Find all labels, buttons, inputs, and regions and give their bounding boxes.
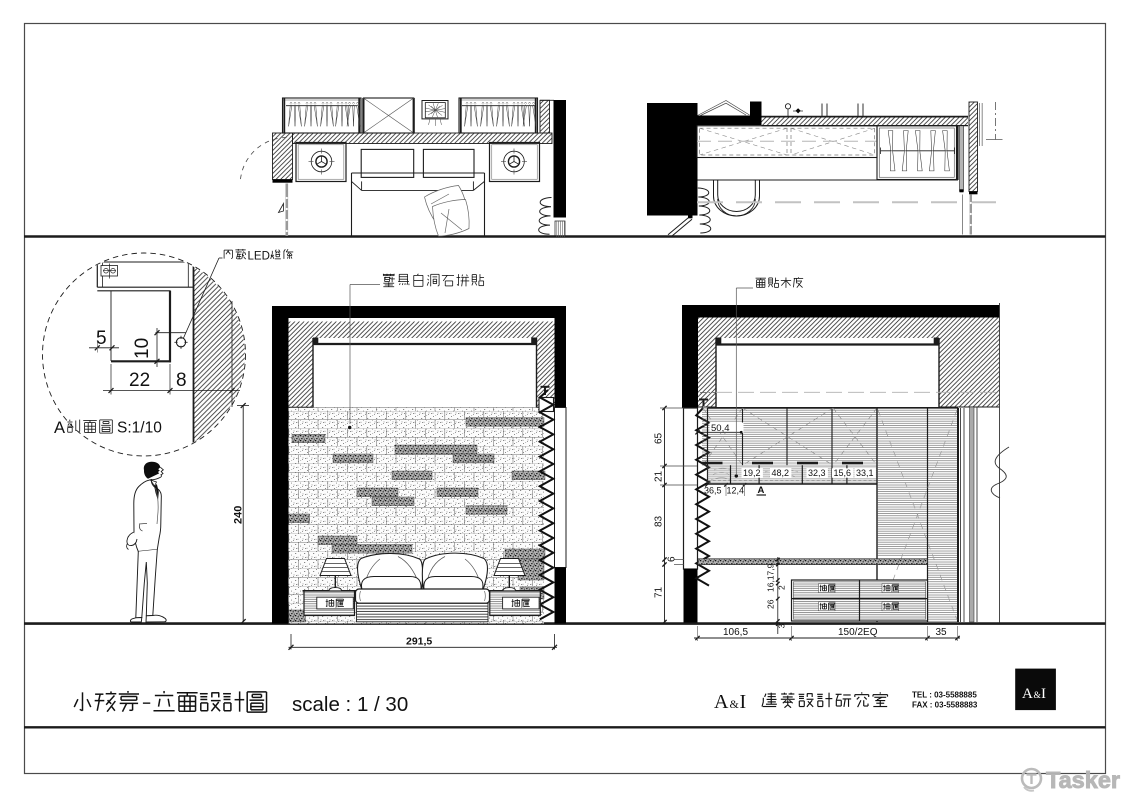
svg-text:S:1/10: S:1/10 (117, 420, 162, 437)
svg-text:16,17,9: 16,17,9 (766, 563, 776, 592)
svg-text:106,5: 106,5 (723, 627, 748, 638)
svg-text:I: I (740, 691, 747, 713)
svg-text:12,4: 12,4 (727, 486, 745, 496)
svg-text:48,2: 48,2 (772, 468, 790, 478)
svg-text:15,6: 15,6 (834, 468, 852, 478)
svg-text:83: 83 (654, 515, 665, 527)
svg-text:A: A (54, 419, 65, 437)
svg-text:6: 6 (667, 556, 678, 562)
svg-text:3: 3 (777, 624, 787, 629)
svg-text:10: 10 (132, 338, 153, 359)
svg-text:LED: LED (248, 251, 270, 263)
svg-text:21: 21 (654, 470, 665, 482)
svg-text:33,1: 33,1 (856, 468, 874, 478)
svg-text:FAX : 03-5588883: FAX : 03-5588883 (912, 701, 978, 710)
svg-text:71: 71 (654, 586, 665, 598)
svg-text:A: A (758, 485, 765, 496)
svg-text:32,3: 32,3 (808, 468, 826, 478)
svg-text:&: & (730, 697, 740, 711)
svg-text:36,5: 36,5 (704, 486, 722, 496)
svg-text:I: I (1041, 686, 1046, 702)
svg-text:22: 22 (129, 370, 150, 391)
svg-text:240: 240 (233, 506, 245, 524)
svg-text:150/2EQ: 150/2EQ (838, 627, 878, 638)
svg-text:A: A (714, 691, 729, 713)
svg-text:Tasker: Tasker (1046, 767, 1120, 793)
svg-text:TEL : 03-5588885: TEL : 03-5588885 (912, 691, 977, 700)
svg-text:19,2: 19,2 (743, 468, 761, 478)
svg-text:26: 26 (766, 599, 776, 609)
svg-text:65: 65 (654, 432, 665, 444)
svg-text:scale : 1 / 30: scale : 1 / 30 (292, 693, 408, 716)
svg-text:35: 35 (936, 627, 948, 638)
svg-text:2: 2 (777, 585, 787, 590)
svg-text:A: A (1022, 686, 1033, 702)
svg-text:8: 8 (176, 370, 187, 391)
svg-text:291,5: 291,5 (406, 636, 432, 648)
